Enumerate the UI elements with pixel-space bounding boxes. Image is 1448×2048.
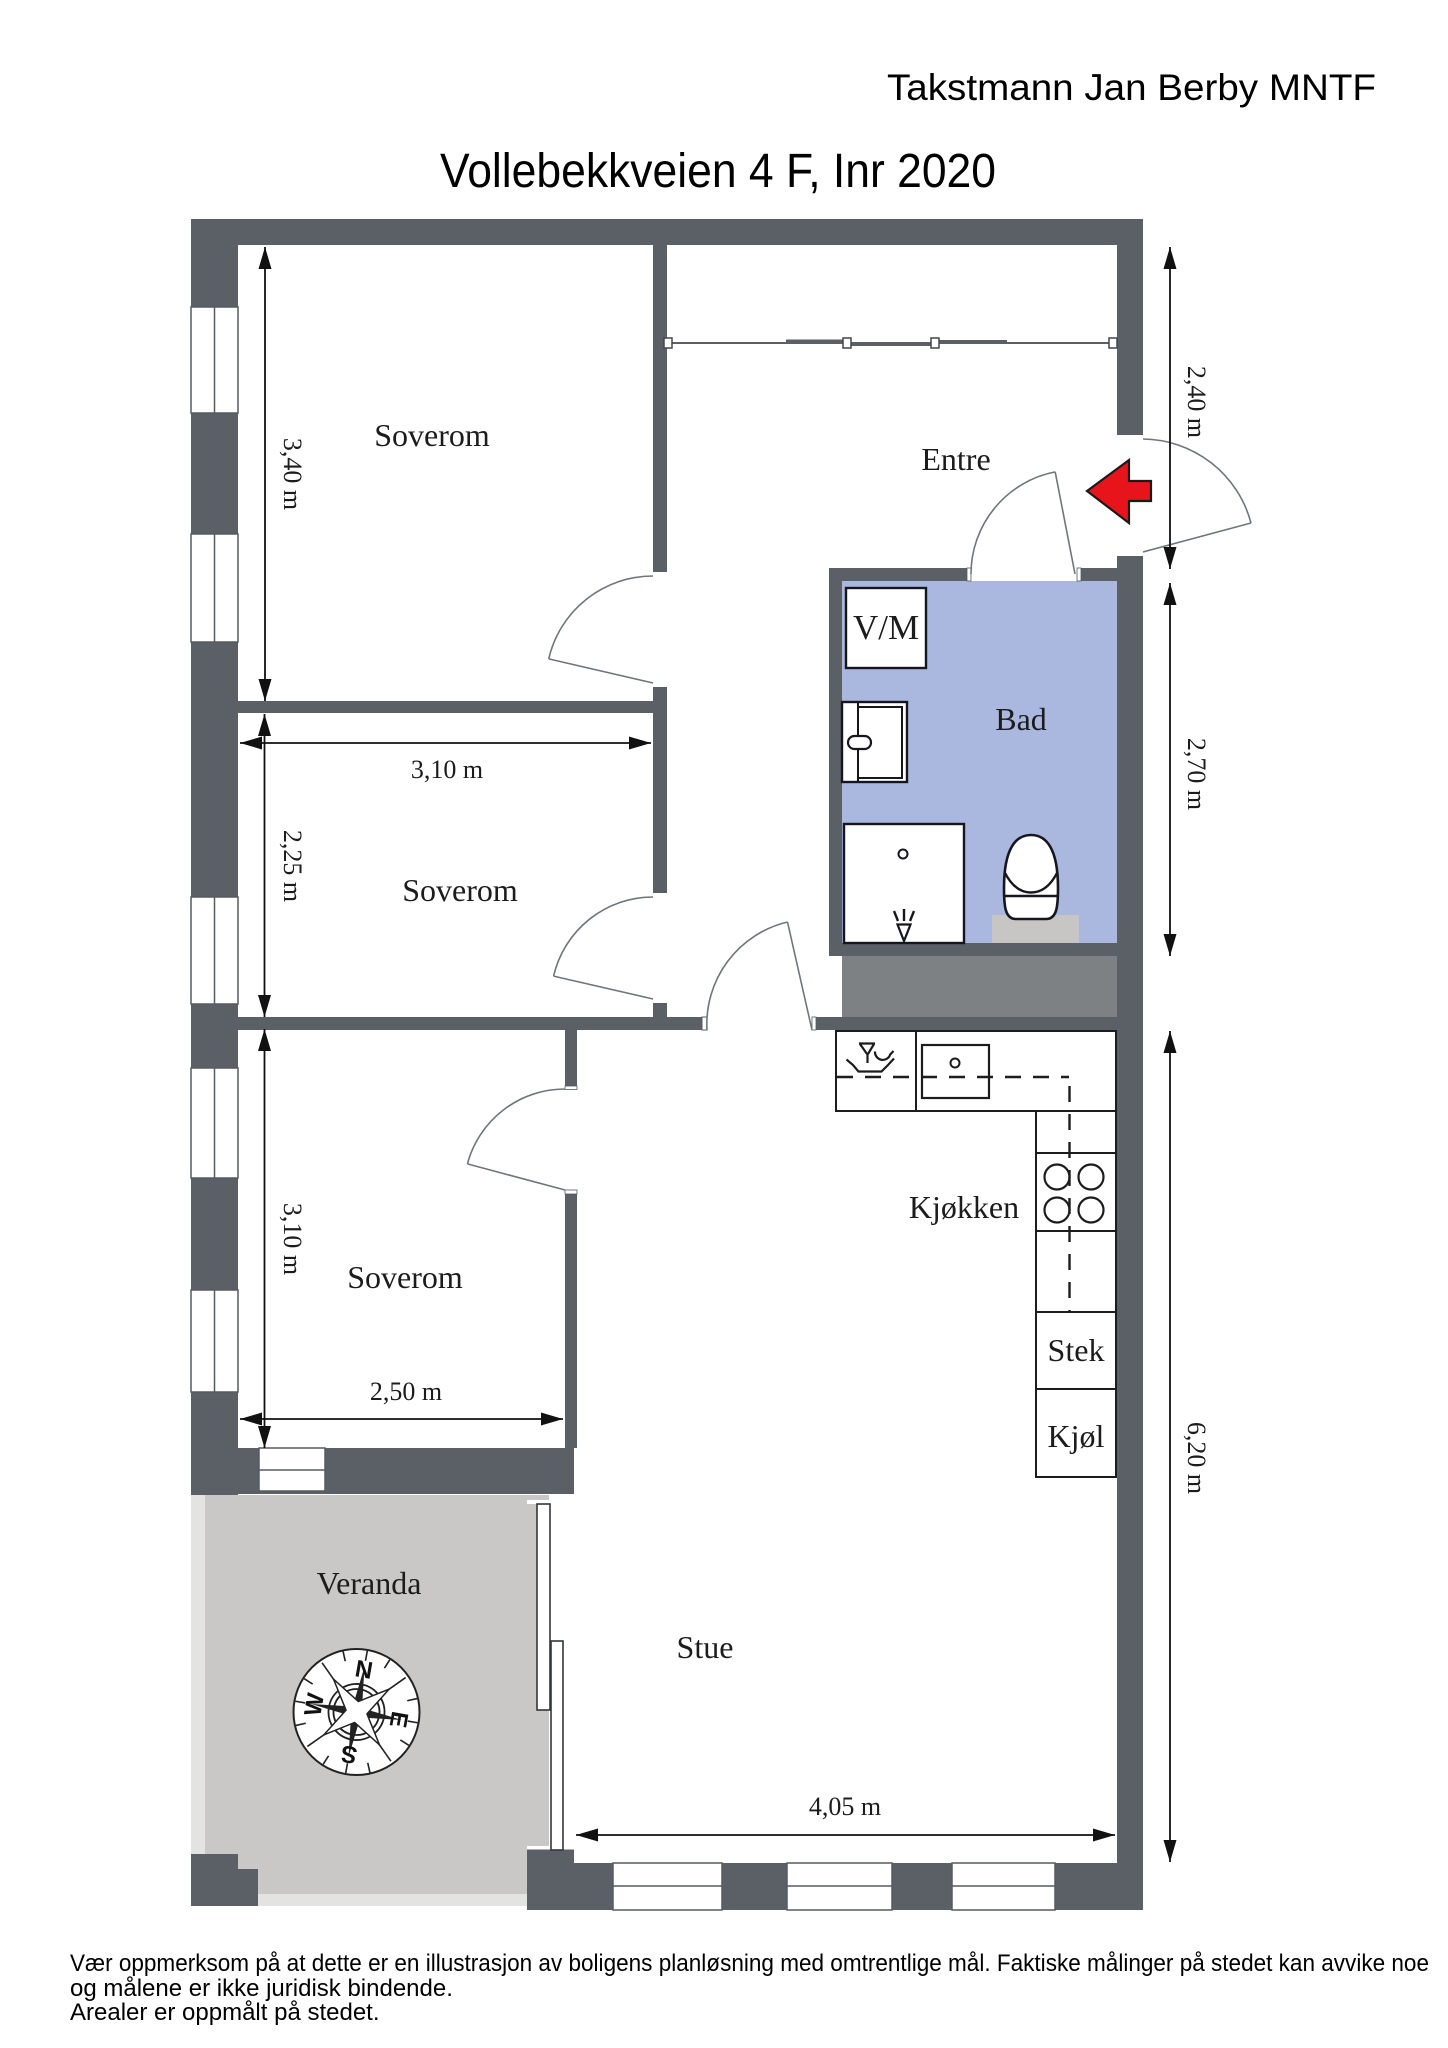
- svg-text:og målene er ikke juridisk bin: og målene er ikke juridisk bindende.: [70, 1975, 453, 2002]
- svg-text:2,25 m: 2,25 m: [278, 830, 307, 902]
- svg-text:Entre: Entre: [921, 441, 990, 477]
- svg-text:2,50 m: 2,50 m: [370, 1377, 442, 1406]
- svg-text:Soverom: Soverom: [402, 872, 518, 908]
- svg-text:Vær oppmerksom på at dette er: Vær oppmerksom på at dette er en illustr…: [70, 1950, 1429, 1977]
- svg-text:3,40 m: 3,40 m: [278, 438, 307, 510]
- svg-text:Soverom: Soverom: [374, 417, 490, 453]
- svg-text:4,05 m: 4,05 m: [809, 1792, 881, 1821]
- svg-text:6,20 m: 6,20 m: [1182, 1422, 1211, 1494]
- svg-text:Vollebekkveien 4 F, Inr 2020: Vollebekkveien 4 F, Inr 2020: [440, 145, 996, 198]
- svg-text:Stue: Stue: [677, 1629, 734, 1665]
- svg-text:Takstmann Jan Berby MNTF: Takstmann Jan Berby MNTF: [887, 67, 1376, 108]
- svg-text:Veranda: Veranda: [317, 1565, 422, 1601]
- svg-text:Soverom: Soverom: [347, 1259, 463, 1295]
- svg-text:2,40 m: 2,40 m: [1182, 366, 1211, 438]
- svg-text:3,10 m: 3,10 m: [411, 755, 483, 784]
- svg-text:2,70 m: 2,70 m: [1182, 738, 1211, 810]
- svg-text:Bad: Bad: [995, 701, 1047, 737]
- svg-text:V/M: V/M: [853, 608, 919, 647]
- svg-text:3,10 m: 3,10 m: [278, 1203, 307, 1275]
- svg-text:Kjøl: Kjøl: [1048, 1418, 1105, 1454]
- svg-text:Arealer er oppmålt på stedet.: Arealer er oppmålt på stedet.: [70, 1999, 380, 2026]
- svg-text:Kjøkken: Kjøkken: [909, 1189, 1019, 1225]
- svg-text:Stek: Stek: [1048, 1332, 1105, 1368]
